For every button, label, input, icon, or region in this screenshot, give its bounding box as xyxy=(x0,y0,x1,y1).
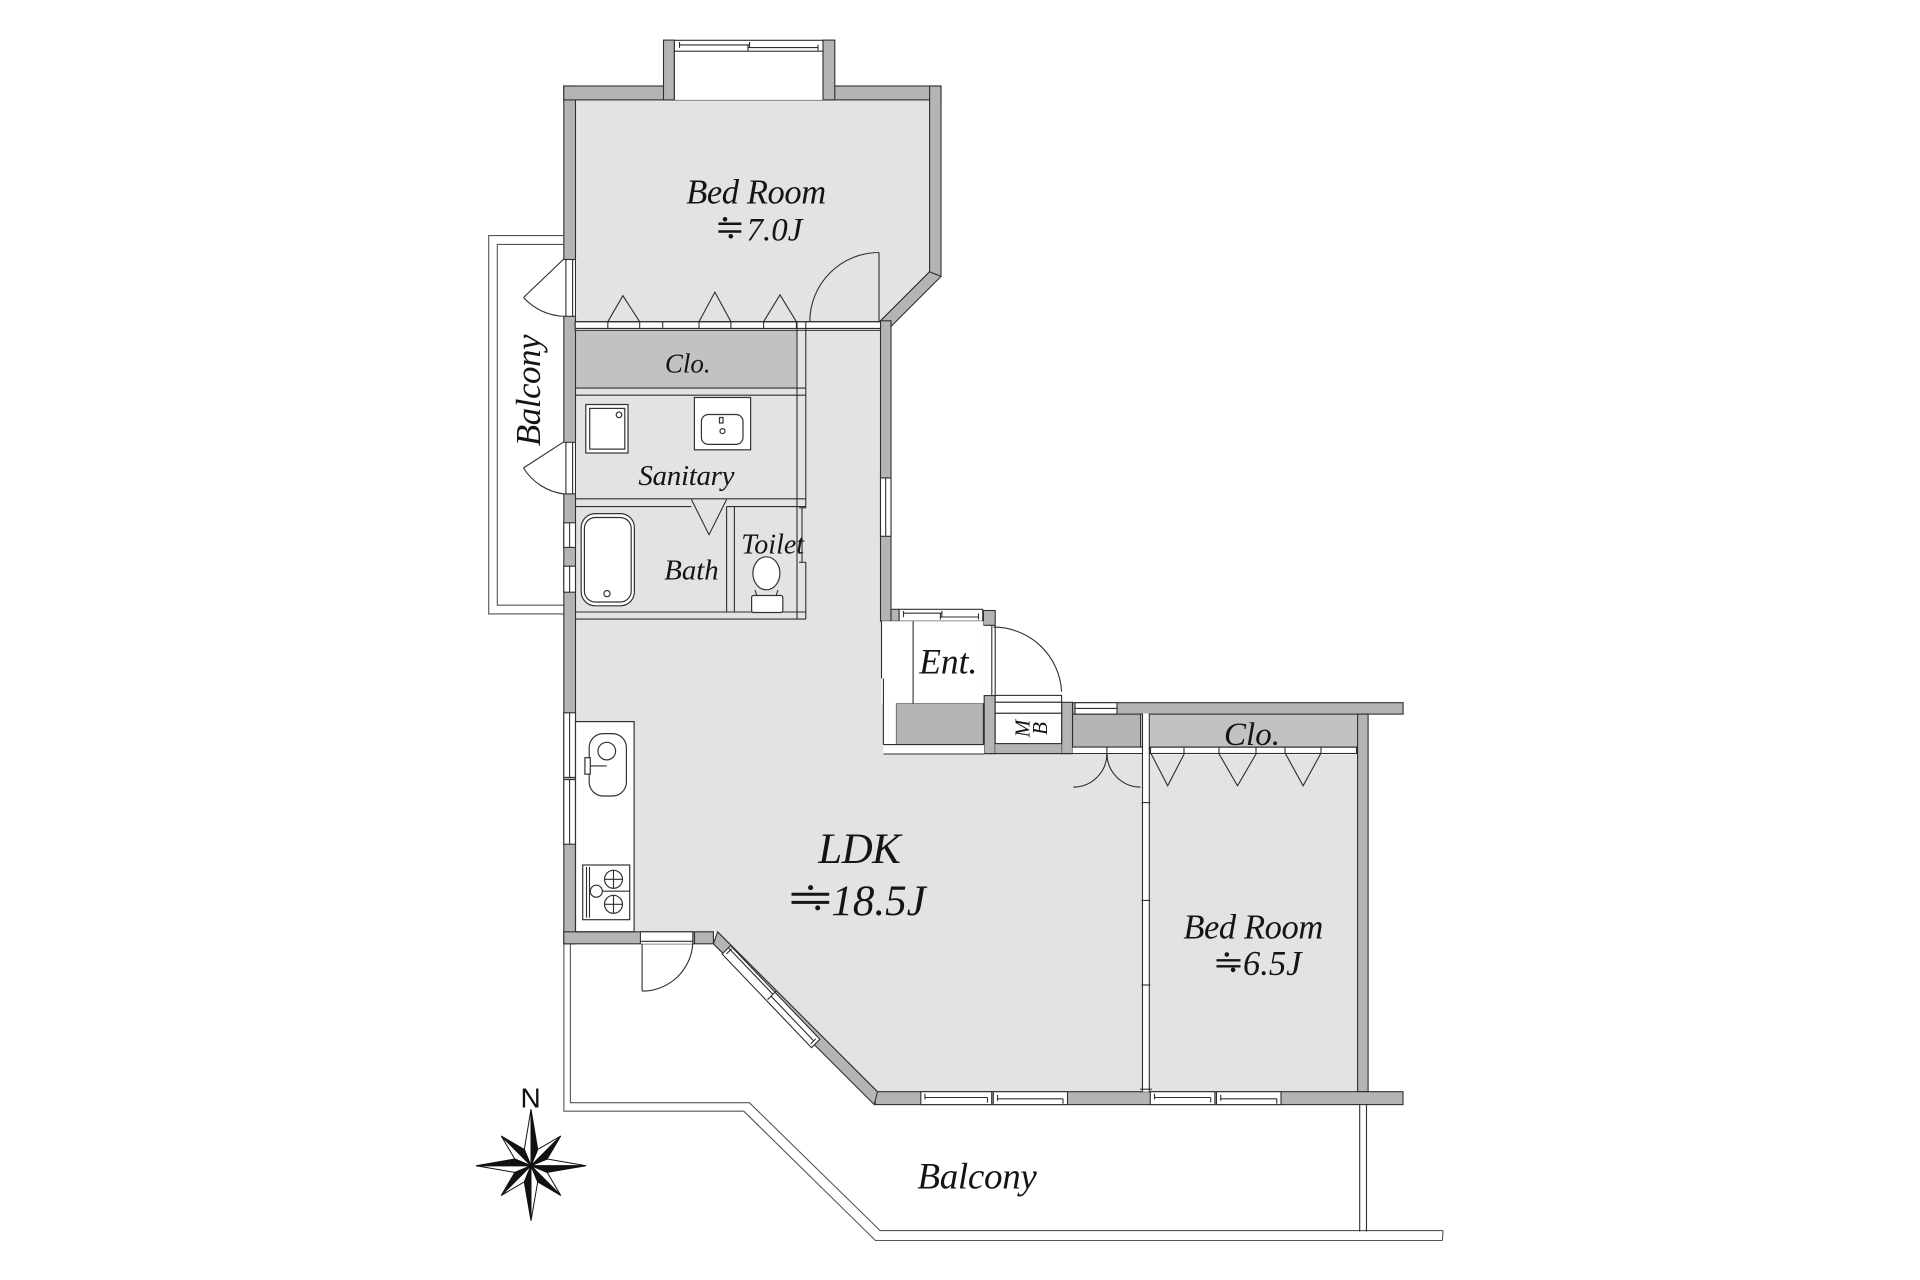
svg-text:LDK: LDK xyxy=(817,826,903,873)
svg-text:N: N xyxy=(520,1083,540,1114)
svg-text:18.5J: 18.5J xyxy=(831,878,927,925)
svg-text:Bed Room: Bed Room xyxy=(1183,908,1323,946)
svg-text:7.0J: 7.0J xyxy=(747,213,804,249)
svg-text:Ent.: Ent. xyxy=(918,642,977,682)
svg-text:Balcony: Balcony xyxy=(509,334,548,446)
svg-text:B: B xyxy=(1028,722,1052,735)
svg-text:Bath: Bath xyxy=(664,555,718,587)
svg-text:Clo.: Clo. xyxy=(1224,717,1280,753)
svg-text:Balcony: Balcony xyxy=(917,1156,1037,1197)
svg-text:Toilet: Toilet xyxy=(741,530,805,561)
svg-text:Bed Room: Bed Room xyxy=(686,174,826,212)
svg-text:Clo.: Clo. xyxy=(665,349,711,379)
svg-text:6.5J: 6.5J xyxy=(1243,945,1303,983)
svg-text:Sanitary: Sanitary xyxy=(638,460,734,492)
